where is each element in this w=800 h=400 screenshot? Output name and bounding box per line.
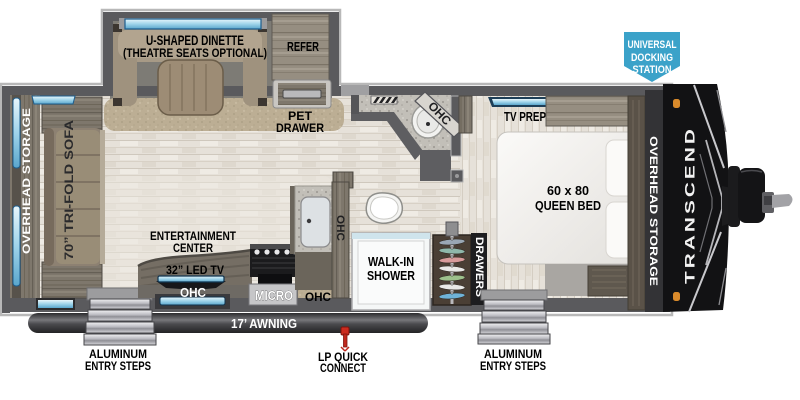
svg-text:WALK-IN: WALK-IN xyxy=(368,255,414,269)
svg-text:TV PREP: TV PREP xyxy=(504,110,546,124)
svg-text:UNIVERSAL: UNIVERSAL xyxy=(628,39,677,51)
svg-text:QUEEN BED: QUEEN BED xyxy=(535,199,601,213)
svg-text:CENTER: CENTER xyxy=(173,241,213,255)
svg-text:(THEATRE SEATS OPTIONAL): (THEATRE SEATS OPTIONAL) xyxy=(123,46,267,60)
svg-text:OHC: OHC xyxy=(334,215,346,241)
svg-text:ALUMINUM: ALUMINUM xyxy=(89,349,147,361)
svg-text:REFER: REFER xyxy=(287,39,319,54)
svg-text:DRAWERS: DRAWERS xyxy=(473,237,485,297)
svg-text:TRANSCEND: TRANSCEND xyxy=(683,126,698,284)
svg-text:DRAWER: DRAWER xyxy=(276,121,324,135)
svg-text:17’ AWNING: 17’ AWNING xyxy=(231,316,297,331)
svg-text:60 x 80: 60 x 80 xyxy=(547,184,589,198)
svg-text:70” TRI-FOLD SOFA: 70” TRI-FOLD SOFA xyxy=(62,120,76,260)
svg-text:SHOWER: SHOWER xyxy=(367,269,415,283)
svg-text:STATION: STATION xyxy=(633,64,672,76)
svg-text:OVERHEAD STORAGE: OVERHEAD STORAGE xyxy=(647,136,659,286)
svg-text:OHC: OHC xyxy=(305,290,331,304)
svg-text:ENTRY STEPS: ENTRY STEPS xyxy=(85,361,151,373)
svg-text:ENTRY STEPS: ENTRY STEPS xyxy=(480,361,546,373)
svg-text:OVERHEAD STORAGE: OVERHEAD STORAGE xyxy=(21,108,33,254)
svg-text:CONNECT: CONNECT xyxy=(320,363,366,375)
svg-text:DOCKING: DOCKING xyxy=(631,52,673,64)
svg-text:MICRO: MICRO xyxy=(255,288,293,303)
svg-text:OHC: OHC xyxy=(180,285,207,300)
svg-text:32” LED TV: 32” LED TV xyxy=(166,263,224,277)
svg-text:ALUMINUM: ALUMINUM xyxy=(484,349,542,361)
